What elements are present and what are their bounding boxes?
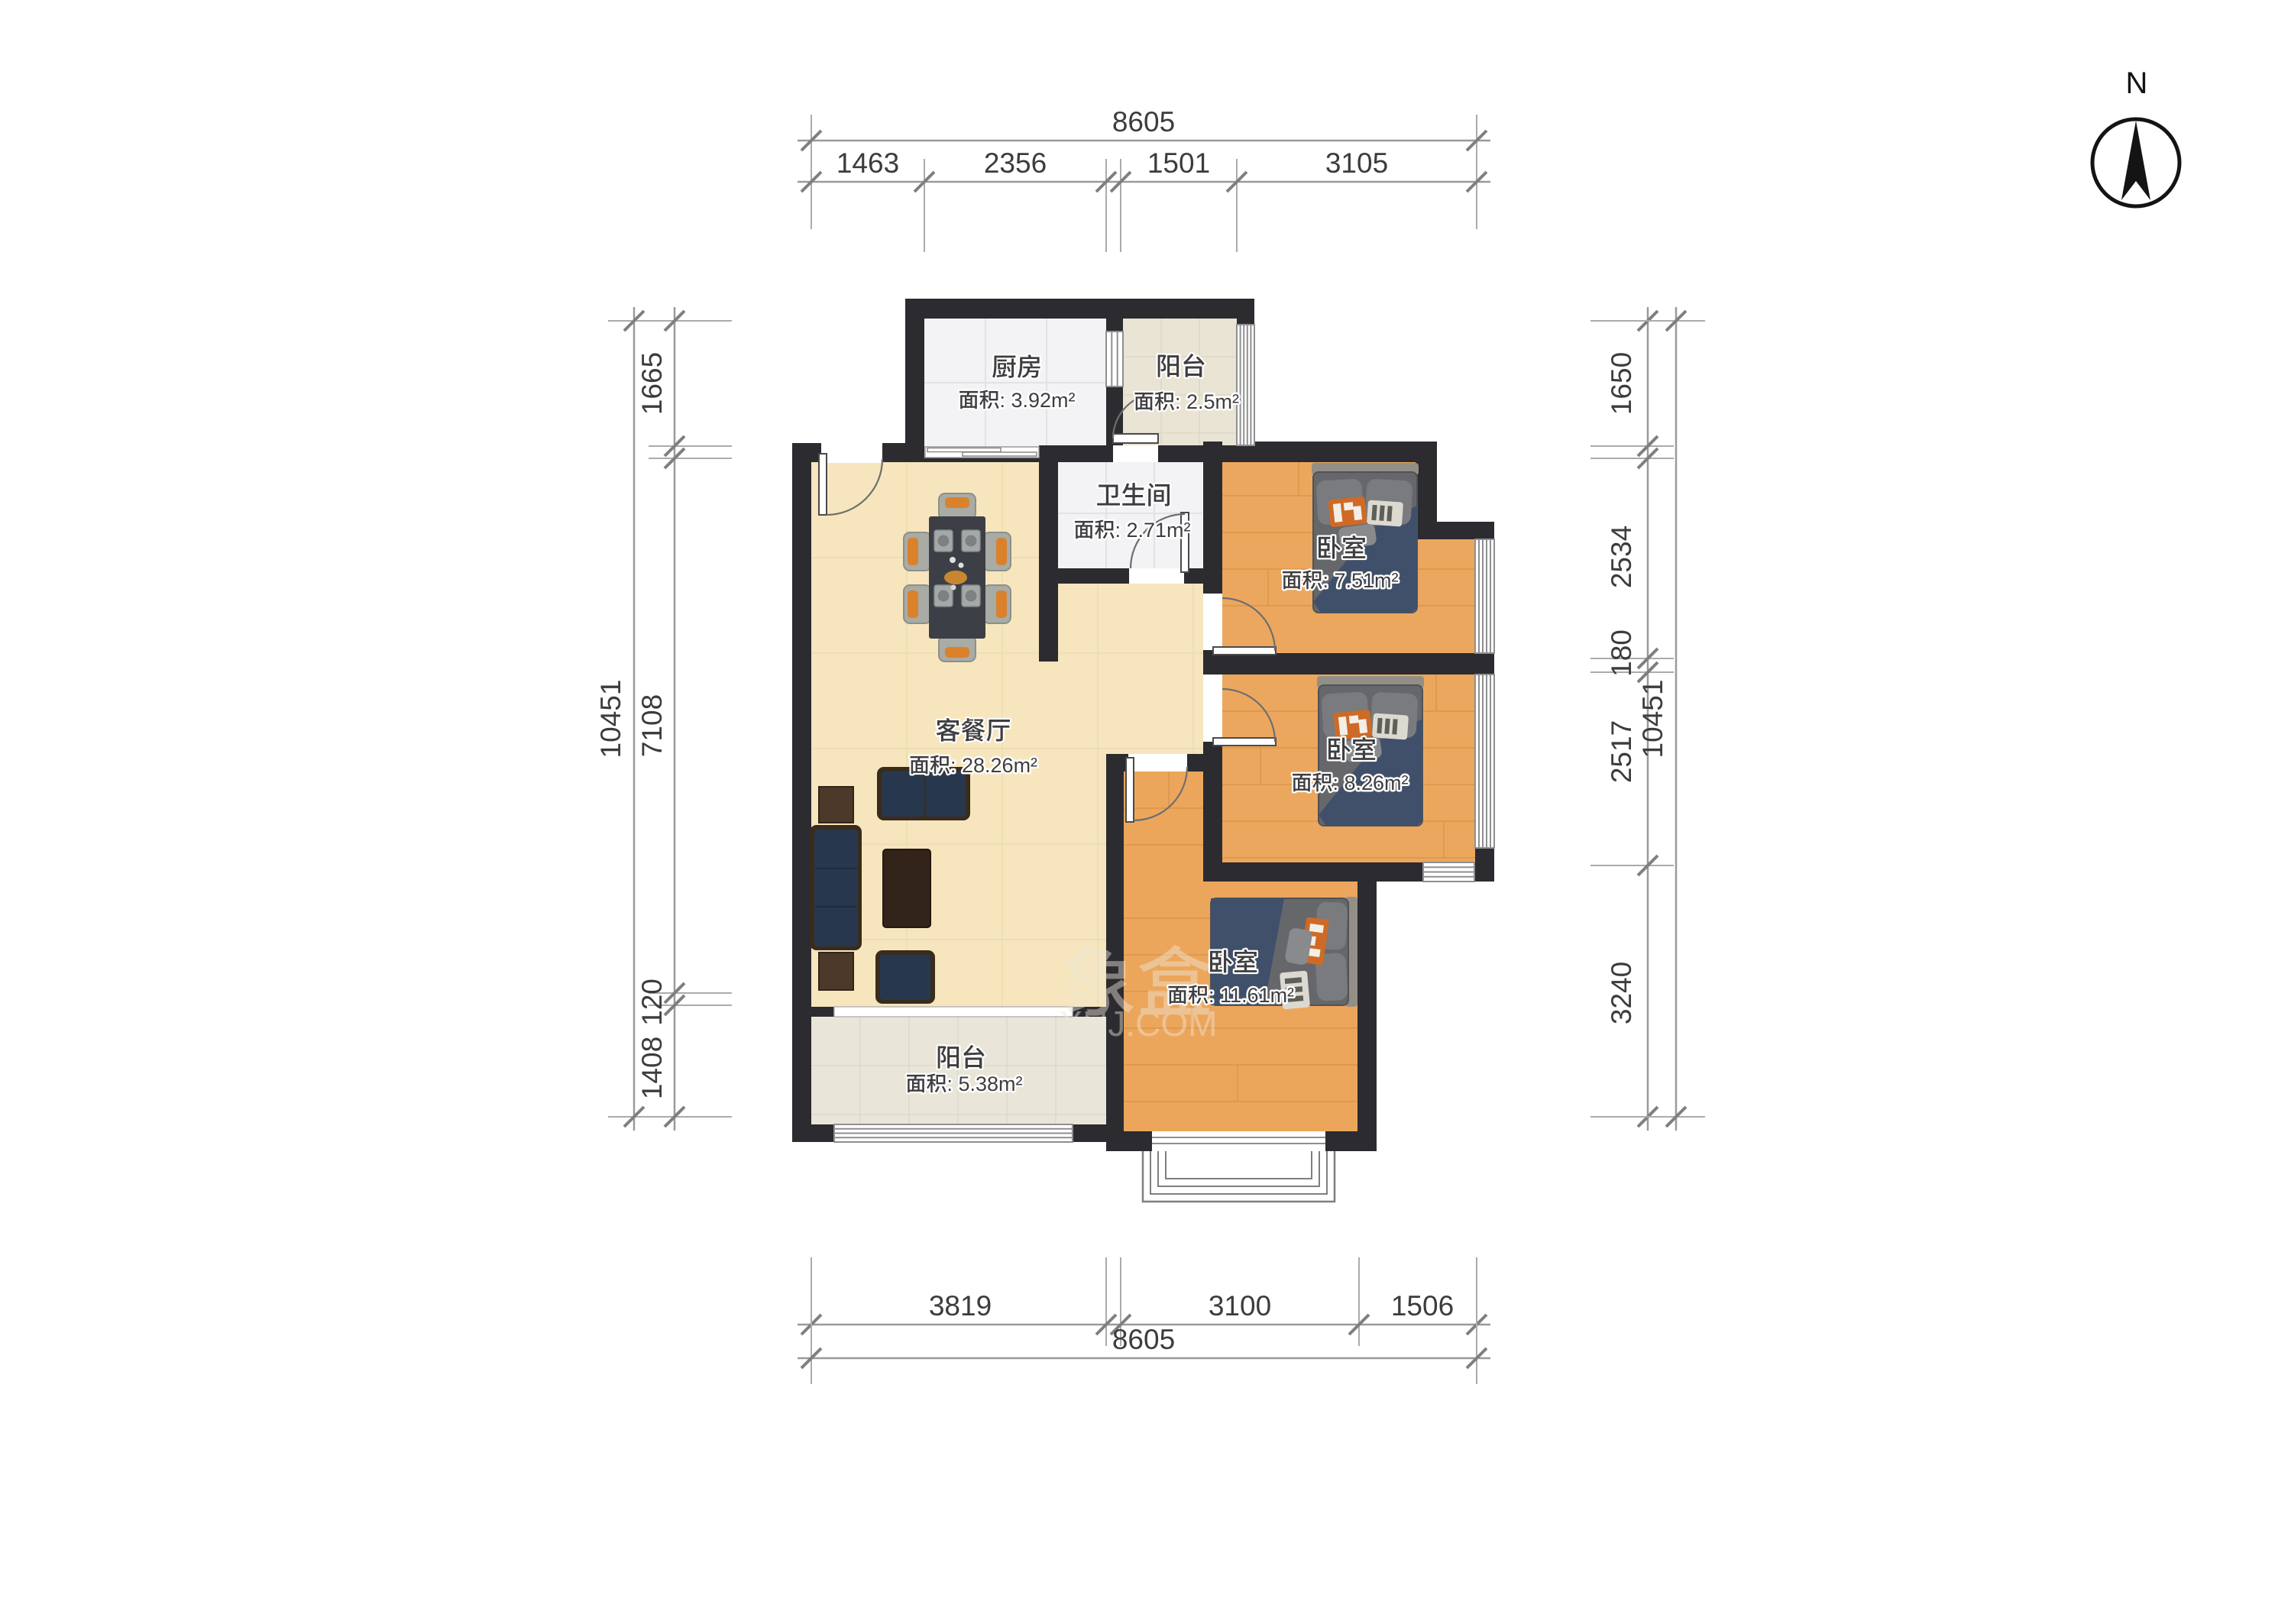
svg-text:2356: 2356 bbox=[984, 147, 1047, 179]
svg-text:: 8.26m²: : 8.26m² bbox=[1333, 772, 1409, 794]
svg-text:XHJ.COM: XHJ.COM bbox=[1060, 1004, 1218, 1043]
svg-text:1650: 1650 bbox=[1606, 352, 1637, 415]
svg-text:: 5.38m²: : 5.38m² bbox=[947, 1072, 1023, 1095]
svg-text:: 28.26m²: : 28.26m² bbox=[950, 754, 1037, 777]
svg-text:2517: 2517 bbox=[1606, 720, 1637, 783]
svg-text:180: 180 bbox=[1606, 629, 1637, 677]
svg-text:3105: 3105 bbox=[1325, 147, 1388, 179]
svg-text:: 7.51m²: : 7.51m² bbox=[1323, 569, 1399, 592]
svg-text:N: N bbox=[2126, 66, 2148, 100]
svg-text:3240: 3240 bbox=[1606, 962, 1637, 1024]
svg-text:3100: 3100 bbox=[1209, 1290, 1271, 1322]
svg-text:2534: 2534 bbox=[1606, 526, 1637, 588]
svg-text:120: 120 bbox=[636, 979, 668, 1026]
svg-text:1506: 1506 bbox=[1391, 1290, 1454, 1322]
svg-text:8605: 8605 bbox=[1112, 1324, 1175, 1355]
svg-text:10451: 10451 bbox=[1637, 680, 1668, 759]
svg-text:1408: 1408 bbox=[636, 1037, 668, 1099]
svg-text:: 2.71m²: : 2.71m² bbox=[1115, 519, 1191, 542]
svg-text:1501: 1501 bbox=[1147, 147, 1210, 179]
svg-text:1665: 1665 bbox=[636, 352, 668, 415]
svg-text:: 3.92m²: : 3.92m² bbox=[1000, 389, 1076, 412]
svg-text:7108: 7108 bbox=[636, 694, 668, 757]
svg-text:: 11.61m²: : 11.61m² bbox=[1209, 984, 1294, 1007]
svg-text:1463: 1463 bbox=[836, 147, 899, 179]
svg-text:3819: 3819 bbox=[929, 1290, 992, 1322]
svg-text:10451: 10451 bbox=[595, 680, 626, 759]
svg-text:: 2.5m²: : 2.5m² bbox=[1175, 390, 1239, 413]
svg-text:8605: 8605 bbox=[1112, 106, 1175, 137]
